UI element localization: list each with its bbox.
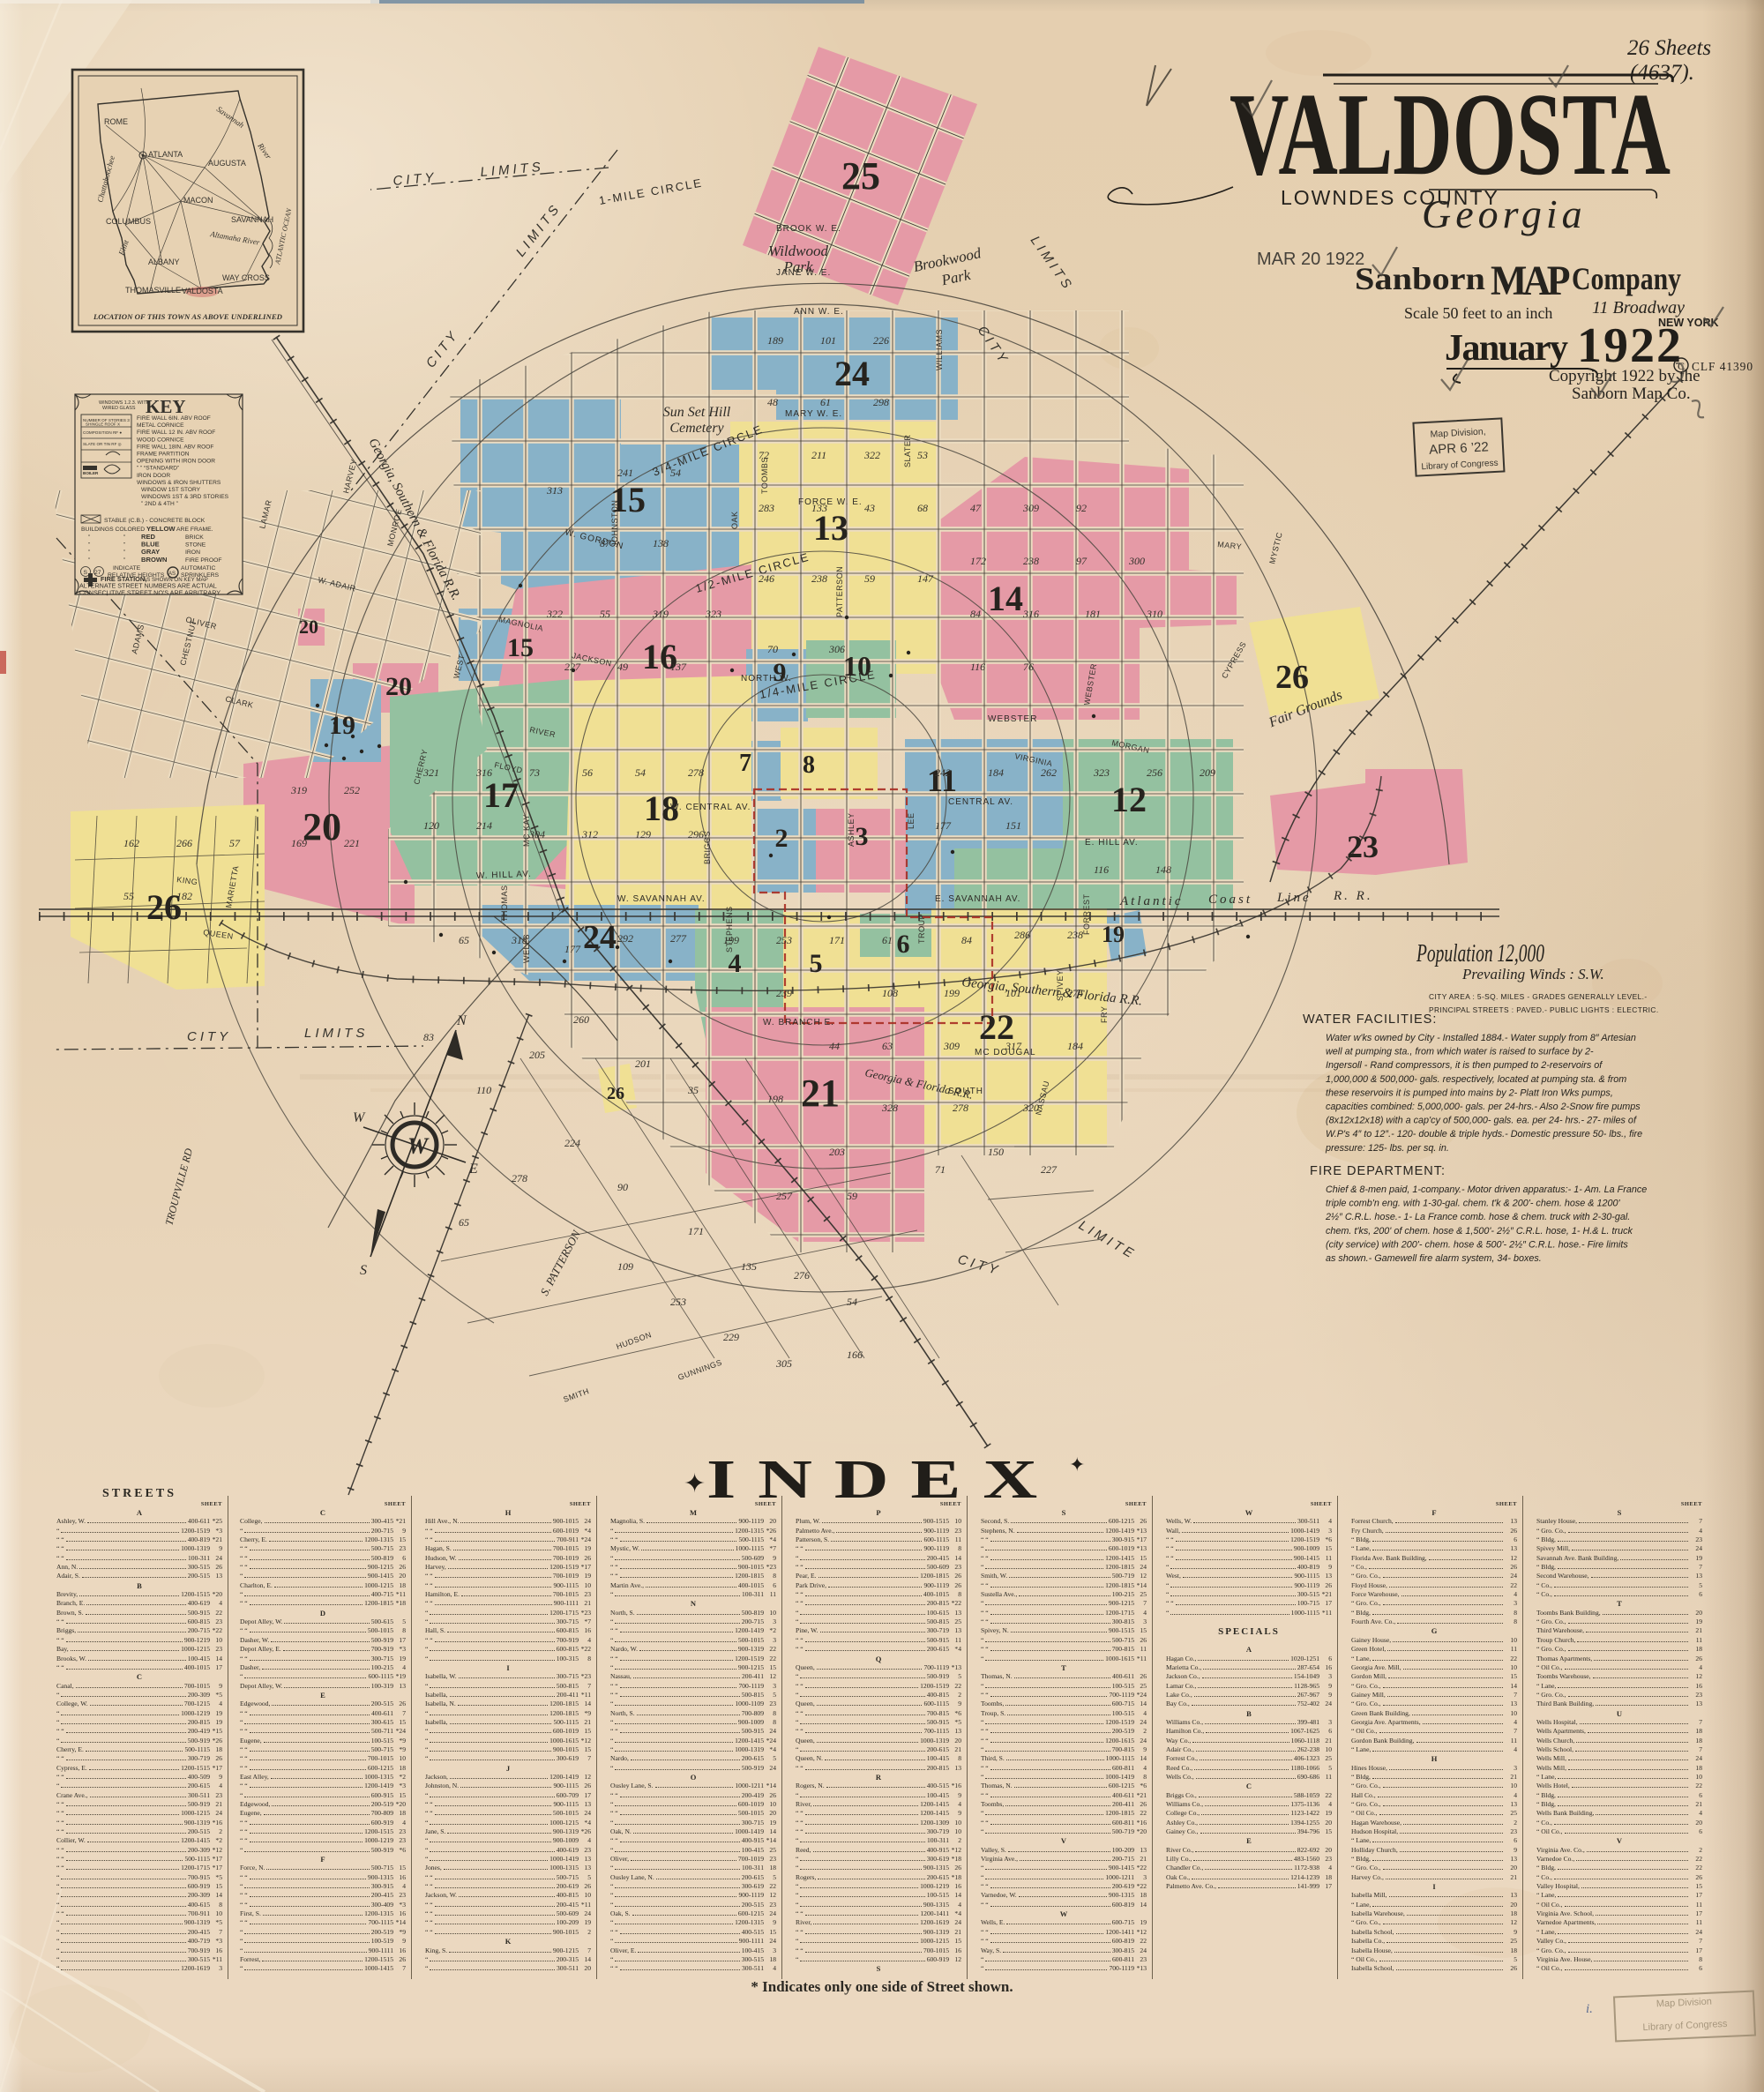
svg-text:319: 319 — [290, 784, 307, 796]
svg-text:24: 24 — [583, 919, 617, 956]
svg-text:(city service) with 200'- chem: (city service) with 200'- chem. hose & 5… — [1326, 1239, 1628, 1250]
svg-text:309: 309 — [1022, 502, 1039, 514]
svg-text:ASHLEY: ASHLEY — [847, 812, 856, 847]
svg-text:IRON DOOR: IRON DOOR — [137, 473, 170, 479]
svg-text:LEE: LEE — [907, 812, 916, 829]
svg-text:292: 292 — [617, 932, 633, 945]
svg-text:3: 3 — [856, 822, 869, 851]
svg-text:E. HILL AV.: E. HILL AV. — [1085, 838, 1139, 848]
svg-text:110: 110 — [476, 1084, 491, 1096]
svg-text:276: 276 — [794, 1269, 810, 1281]
svg-text:169: 169 — [291, 837, 307, 849]
svg-text:as shown.- Gamewell fire alarm: as shown.- Gamewell fire alarm system, 3… — [1326, 1253, 1542, 1264]
svg-text:VALDOSTA: VALDOSTA — [182, 287, 223, 295]
svg-text:January: January — [1445, 328, 1568, 369]
svg-text:SLATE OR TIN RF ◎: SLATE OR TIN RF ◎ — [83, 442, 123, 446]
svg-text:Company: Company — [1572, 261, 1681, 296]
svg-text:76: 76 — [1023, 661, 1034, 673]
svg-text:300: 300 — [1128, 555, 1145, 567]
svg-text:SPIVEY: SPIVEY — [1056, 969, 1065, 1001]
svg-text:322: 322 — [546, 608, 563, 620]
svg-text:150: 150 — [988, 1146, 1004, 1158]
svg-text:97: 97 — [1076, 555, 1088, 567]
svg-text:205: 205 — [529, 1049, 545, 1061]
svg-text:CENTRAL AV.: CENTRAL AV. — [948, 797, 1013, 807]
svg-text:239: 239 — [776, 987, 792, 999]
svg-text:STEPHENS: STEPHENS — [725, 906, 734, 953]
svg-text:LIMITS: LIMITS — [480, 160, 545, 180]
svg-text:253: 253 — [776, 934, 792, 946]
svg-text:229: 229 — [723, 1331, 739, 1343]
svg-text:59: 59 — [864, 572, 875, 585]
svg-text:5: 5 — [810, 949, 823, 978]
svg-text:7: 7 — [739, 750, 751, 777]
svg-text:6: 6 — [897, 930, 910, 959]
svg-text:CITY: CITY — [392, 170, 437, 189]
svg-text:WATER FACILITIES:: WATER FACILITIES: — [1303, 1012, 1437, 1027]
svg-text:209: 209 — [1200, 766, 1215, 779]
svg-text:278: 278 — [512, 1172, 527, 1184]
svg-text:MARY W. E.: MARY W. E. — [785, 409, 842, 419]
svg-text:LOCATION OF THIS TOWN AS ABOVE: LOCATION OF THIS TOWN AS ABOVE UNDERLINE… — [93, 312, 283, 321]
svg-text:116: 116 — [1094, 863, 1109, 876]
svg-text:BOILER: BOILER — [83, 471, 99, 475]
svg-text:20: 20 — [303, 805, 341, 848]
svg-text:286: 286 — [1014, 929, 1030, 941]
svg-text:THOMASVILLE: THOMASVILLE — [125, 286, 181, 295]
svg-text:GUNNINGS: GUNNINGS — [676, 1358, 723, 1382]
svg-text:(8x12x12x18) with a cap'cy of: (8x12x12x18) with a cap'cy of 500,000- g… — [1326, 1116, 1637, 1126]
svg-text:ATLANTA: ATLANTA — [148, 150, 183, 159]
svg-text:21: 21 — [801, 1072, 840, 1115]
svg-text:N: N — [456, 1013, 467, 1028]
svg-text:322: 322 — [863, 449, 880, 461]
svg-text:203: 203 — [829, 1146, 845, 1158]
svg-text:189: 189 — [767, 334, 783, 347]
svg-text:WELLS: WELLS — [522, 934, 531, 963]
svg-text:56: 56 — [582, 766, 593, 779]
svg-text:COLUMBUS: COLUMBUS — [106, 217, 151, 226]
svg-text:48: 48 — [767, 396, 778, 408]
svg-text:262: 262 — [1041, 766, 1057, 779]
svg-text:” ” “STANDARD”: ” ” “STANDARD” — [137, 466, 179, 472]
svg-text:26: 26 — [607, 1084, 624, 1103]
svg-text:309: 309 — [943, 1040, 960, 1052]
svg-text:SHINGLE ROOF X: SHINGLE ROOF X — [86, 422, 120, 427]
svg-text:316: 316 — [1022, 608, 1039, 620]
svg-text:S: S — [84, 570, 88, 576]
svg-text:E. SAVANNAH AV.: E. SAVANNAH AV. — [935, 894, 1020, 904]
svg-text:177: 177 — [564, 943, 581, 955]
svg-text:15: 15 — [507, 633, 534, 662]
svg-text:312: 312 — [581, 828, 598, 841]
svg-text:WILLIAMS: WILLIAMS — [935, 329, 944, 370]
svg-text:Map Division,: Map Division, — [1430, 426, 1486, 439]
svg-text:LIMITS: LIMITS — [1028, 234, 1076, 295]
svg-text:260: 260 — [573, 1013, 589, 1026]
svg-text:1,000,000 & 500,000- gals. res: 1,000,000 & 500,000- gals. respectively,… — [1326, 1074, 1626, 1085]
svg-text:182: 182 — [176, 890, 192, 902]
svg-text:323: 323 — [1093, 766, 1110, 779]
svg-text:BROOK W. E.: BROOK W. E. — [776, 224, 841, 234]
svg-text:CITY AREA : 5-SQ. MILES - GRAD: CITY AREA : 5-SQ. MILES - GRADES GENERAL… — [1429, 992, 1648, 1001]
svg-text:Sun Set Hill: Sun Set Hill — [663, 405, 731, 420]
svg-text:ALBANY: ALBANY — [148, 258, 180, 266]
svg-text:328: 328 — [881, 1102, 898, 1114]
svg-text:these reservoirs it is pumped: these reservoirs it is pumped into mains… — [1326, 1087, 1613, 1098]
svg-text:capacities combined: 5,000,000: capacities combined: 5,000,000- gals. pe… — [1326, 1102, 1641, 1112]
svg-text:SMITH: SMITH — [562, 1386, 590, 1404]
svg-text:PATTERSON: PATTERSON — [835, 566, 844, 617]
svg-text:AUTOMATIC: AUTOMATIC — [181, 565, 215, 572]
svg-text:CITY: CITY — [956, 1252, 1003, 1279]
svg-text:TROUPVILLE RD: TROUPVILLE RD — [162, 1147, 195, 1227]
svg-text:306: 306 — [828, 643, 845, 655]
svg-text:253: 253 — [670, 1296, 686, 1308]
svg-text:44: 44 — [829, 1040, 840, 1052]
svg-text:FRY: FRY — [1100, 1006, 1109, 1023]
svg-text:171: 171 — [829, 934, 845, 946]
svg-text:49: 49 — [617, 661, 628, 673]
svg-text:FIRE WALL 12 IN. ABV ROOF: FIRE WALL 12 IN. ABV ROOF — [137, 430, 215, 436]
svg-text:54: 54 — [847, 1296, 857, 1308]
svg-text:65: 65 — [459, 934, 469, 946]
svg-text:90: 90 — [617, 1181, 628, 1193]
svg-text:54: 54 — [670, 467, 681, 479]
svg-text:1-MILE CIRCLE: 1-MILE CIRCLE — [598, 176, 704, 206]
svg-text:120: 120 — [423, 819, 439, 832]
svg-text:108: 108 — [882, 987, 898, 999]
svg-text:319: 319 — [652, 608, 669, 620]
svg-text:59: 59 — [847, 1190, 857, 1202]
svg-text:” 2ND & 4TH ”: ” 2ND & 4TH ” — [141, 501, 178, 507]
svg-text:triple comb'n eng. with 1-30-g: triple comb'n eng. with 1-30-gal. chem. … — [1326, 1199, 1620, 1209]
svg-text:70: 70 — [767, 643, 778, 655]
svg-text:WINDOWS 1ST & 3RD STORIES: WINDOWS 1ST & 3RD STORIES — [141, 494, 229, 500]
svg-text:W. ADAIR: W. ADAIR — [318, 575, 357, 593]
svg-text:246: 246 — [759, 572, 774, 585]
svg-text:171: 171 — [688, 1225, 704, 1237]
svg-text:LIMITE: LIMITE — [1076, 1218, 1139, 1263]
svg-text:W. HILL AV.: W. HILL AV. — [476, 870, 532, 881]
svg-text:Georgia: Georgia — [1422, 191, 1587, 236]
svg-text:109: 109 — [617, 1260, 633, 1273]
svg-text:CITY: CITY — [423, 326, 462, 370]
svg-text:JANE W. E.: JANE W. E. — [776, 268, 831, 278]
svg-text:TOOMBS: TOOMBS — [760, 457, 769, 494]
svg-text:Atlantic: Atlantic — [1119, 894, 1184, 908]
svg-text:W. SAVANNAH AV.: W. SAVANNAH AV. — [617, 894, 706, 904]
svg-text:METAL CORNICE: METAL CORNICE — [137, 422, 184, 429]
svg-text:252: 252 — [344, 784, 360, 796]
svg-text:CHESTNUT: CHESTNUT — [178, 619, 198, 667]
svg-text:266: 266 — [176, 837, 192, 849]
svg-text:147: 147 — [917, 572, 934, 585]
svg-text:SAVANNAH: SAVANNAH — [231, 215, 273, 224]
svg-text:184: 184 — [988, 766, 1004, 779]
svg-text:R. R.: R. R. — [1333, 889, 1373, 903]
svg-text:101: 101 — [820, 334, 836, 347]
svg-text:61: 61 — [882, 934, 893, 946]
svg-text:Park: Park — [939, 266, 973, 289]
svg-text:1922: 1922 — [1577, 318, 1683, 373]
svg-text:LIMITS: LIMITS — [513, 200, 564, 259]
svg-text:HARVEY: HARVEY — [341, 458, 358, 494]
svg-text:298: 298 — [873, 396, 889, 408]
svg-text:ANN W. E.: ANN W. E. — [794, 307, 844, 317]
svg-text:BROWN: BROWN — [141, 556, 168, 564]
svg-text:TROUP: TROUP — [917, 914, 926, 944]
svg-text:92: 92 — [1076, 502, 1087, 514]
svg-text:CONSECUTIVE STREET NO'S ARE AR: CONSECUTIVE STREET NO'S ARE ARBITRARY — [79, 589, 220, 597]
svg-text:8: 8 — [803, 751, 815, 779]
svg-text:MYSTIC: MYSTIC — [1267, 531, 1284, 564]
svg-text:Population 12,000: Population 12,000 — [1416, 939, 1544, 968]
svg-text:129: 129 — [635, 828, 651, 841]
svg-text:184: 184 — [1067, 1040, 1083, 1052]
svg-text:238: 238 — [1067, 929, 1083, 941]
svg-text:OPENING WITH IRON DOOR: OPENING WITH IRON DOOR — [137, 459, 215, 465]
svg-text:23: 23 — [1347, 829, 1379, 864]
svg-text:W. BRANCH E.: W. BRANCH E. — [763, 1018, 834, 1027]
svg-text:199: 199 — [944, 987, 960, 999]
svg-text:20: 20 — [299, 616, 318, 638]
svg-text:well at pumping sta., from whi: well at pumping sta., from which water i… — [1326, 1047, 1594, 1057]
svg-text:68: 68 — [917, 502, 928, 514]
svg-text:162: 162 — [123, 837, 139, 849]
svg-text:227: 227 — [1041, 1163, 1058, 1176]
svg-text:26 Sheets: 26 Sheets — [1627, 36, 1711, 60]
svg-text:KEY: KEY — [146, 396, 186, 417]
svg-text:63: 63 — [882, 1040, 893, 1052]
svg-text:84: 84 — [961, 934, 972, 946]
svg-text:198: 198 — [767, 1093, 783, 1105]
svg-text:Ingersoll - Rand compressors,: Ingersoll - Rand compressors, it is then… — [1326, 1060, 1603, 1071]
svg-text:135: 135 — [741, 1260, 757, 1273]
svg-text:APR 6 ’22: APR 6 ’22 — [1429, 439, 1489, 458]
svg-text:316: 316 — [475, 766, 492, 779]
svg-text:137: 137 — [670, 661, 687, 673]
svg-text:133: 133 — [811, 502, 827, 514]
svg-text:17: 17 — [483, 775, 519, 815]
svg-text:WINDOW 1ST STORY: WINDOW 1ST STORY — [141, 487, 201, 493]
svg-text:256: 256 — [1147, 766, 1162, 779]
svg-text:323: 323 — [705, 608, 721, 620]
svg-text:NORTH W.: NORTH W. — [741, 674, 792, 684]
svg-text:THOMAS: THOMAS — [500, 885, 509, 922]
svg-text:181: 181 — [1085, 608, 1101, 620]
svg-text:Chief & 8-men paid, 1-company.: Chief & 8-men paid, 1-company.- Motor dr… — [1326, 1184, 1647, 1195]
svg-text:24: 24 — [834, 354, 870, 393]
svg-text:238: 238 — [1023, 555, 1039, 567]
svg-text:151: 151 — [1005, 819, 1021, 832]
svg-text:221: 221 — [344, 837, 360, 849]
svg-text:25: 25 — [841, 154, 880, 198]
svg-text:HUDSON: HUDSON — [615, 1330, 653, 1351]
svg-text:278: 278 — [688, 766, 704, 779]
svg-text:LIMITS: LIMITS — [304, 1026, 368, 1041]
svg-text:MAP: MAP — [1491, 258, 1569, 304]
svg-text:35: 35 — [687, 1084, 699, 1096]
svg-text:ROME: ROME — [104, 117, 128, 126]
svg-text:STONE: STONE — [185, 542, 206, 549]
svg-text:55: 55 — [123, 890, 134, 902]
svg-text:241: 241 — [617, 467, 633, 479]
svg-text:PRINCIPAL STREETS : PAVED.- P: PRINCIPAL STREETS : PAVED.- PUBLIC LIGHT… — [1429, 1005, 1659, 1014]
svg-text:pressure: 125- lbs. per sq. in: pressure: 125- lbs. per sq. in. — [1325, 1143, 1449, 1154]
svg-text:FORREST: FORREST — [1082, 893, 1091, 935]
svg-text:W: W — [353, 1110, 366, 1125]
svg-text:278: 278 — [953, 1102, 968, 1114]
svg-text:310: 310 — [1146, 608, 1162, 620]
svg-text:JOHNSTON: JOHNSTON — [610, 500, 619, 547]
svg-text:COMPOSITION RF ●: COMPOSITION RF ● — [83, 430, 122, 435]
svg-text:IRON: IRON — [185, 549, 200, 556]
svg-text:19: 19 — [1102, 922, 1125, 947]
svg-text:296: 296 — [688, 828, 704, 841]
svg-text:71: 71 — [935, 1163, 946, 1176]
svg-text:SLATER: SLATER — [903, 435, 912, 467]
svg-text:257: 257 — [776, 1190, 793, 1202]
svg-text:54: 54 — [635, 766, 646, 779]
svg-text:Coast: Coast — [1208, 893, 1252, 907]
svg-text:177: 177 — [935, 819, 952, 832]
svg-text:Georgia, Southern & Florida R: Georgia, Southern & Florida R.R. — [365, 436, 463, 602]
svg-text:238: 238 — [811, 572, 827, 585]
svg-text:SOUTH: SOUTH — [948, 1087, 983, 1096]
svg-text:WEBSTER: WEBSTER — [988, 714, 1037, 724]
svg-text:E: E — [468, 1162, 478, 1177]
svg-text:AUGUSTA: AUGUSTA — [208, 159, 246, 168]
svg-text:47: 47 — [970, 502, 982, 514]
svg-text:Scale 50 feet to an inch: Scale 50 feet to an inch — [1404, 304, 1552, 322]
svg-text:CITY: CITY — [975, 324, 1013, 369]
svg-text:Cemetery: Cemetery — [669, 421, 724, 436]
svg-text:Wildwood: Wildwood — [768, 243, 829, 259]
svg-text:Library of Congress: Library of Congress — [1421, 459, 1499, 473]
svg-text:Water w'ks owned by City - Ins: Water w'ks owned by City - Installed 188… — [1326, 1033, 1636, 1043]
svg-text:214: 214 — [476, 819, 492, 832]
svg-text:WAY CROSS: WAY CROSS — [222, 273, 270, 282]
svg-text:CLF 41390: CLF 41390 — [1692, 361, 1753, 374]
svg-text:FRAME PARTITION: FRAME PARTITION — [137, 452, 190, 458]
svg-text:242: 242 — [935, 766, 951, 779]
svg-text:FIRE WALL 18IN. ABV ROOF: FIRE WALL 18IN. ABV ROOF — [137, 444, 213, 450]
svg-text:OAK: OAK — [730, 511, 739, 529]
svg-text:STABLE (C.B.) - CONCRETE BLOC: STABLE (C.B.) - CONCRETE BLOCK — [104, 518, 206, 524]
svg-text:12: 12 — [1111, 780, 1147, 819]
svg-text:2½″ C.R.L. hose.- 1- La France: 2½″ C.R.L. hose.- 1- La France comb. hos… — [1325, 1212, 1630, 1222]
svg-text:BUILDINGS COLORED YELLOW ARE F: BUILDINGS COLORED YELLOW ARE FRAME. — [81, 525, 213, 533]
svg-text:313: 313 — [546, 484, 563, 497]
svg-text:chem. t'ks, 200' of chem. hose: chem. t'ks, 200' of chem. hose & 1,500'-… — [1326, 1226, 1633, 1237]
svg-text:11 Broadway: 11 Broadway — [1592, 298, 1685, 318]
svg-text:WIRED GLASS: WIRED GLASS — [102, 406, 136, 411]
svg-text:W.P's 4″ to 12″.- 120- double: W.P's 4″ to 12″.- 120- double & triple h… — [1326, 1129, 1642, 1139]
svg-text:201: 201 — [635, 1057, 651, 1070]
svg-text:INDICATE: INDICATE — [113, 565, 141, 572]
svg-text:Sanborn Map Co.: Sanborn Map Co. — [1572, 385, 1691, 403]
svg-text:224: 224 — [564, 1137, 580, 1149]
svg-text:WOOD CORNICE: WOOD CORNICE — [137, 437, 184, 443]
svg-text:Line: Line — [1276, 891, 1312, 905]
svg-text:2: 2 — [775, 824, 789, 853]
svg-text:305: 305 — [775, 1357, 792, 1370]
svg-text:MC KAY: MC KAY — [522, 814, 531, 847]
svg-text:317: 317 — [1005, 1040, 1022, 1052]
svg-text:FORCE W. E.: FORCE W. E. — [798, 497, 863, 507]
svg-text:73: 73 — [529, 766, 540, 779]
svg-text:65: 65 — [459, 1216, 469, 1229]
svg-text:55: 55 — [600, 608, 610, 620]
svg-text:VALDOSTA: VALDOSTA — [1230, 69, 1671, 199]
svg-text:226: 226 — [873, 334, 889, 347]
svg-text:116: 116 — [970, 661, 985, 673]
svg-text:Prevailing Winds : S.W.: Prevailing Winds : S.W. — [1461, 966, 1604, 982]
svg-text:✦: ✦ — [1069, 1453, 1085, 1476]
svg-text:W: W — [407, 1133, 430, 1159]
svg-text:84: 84 — [970, 608, 981, 620]
svg-text:BRIGGS: BRIGGS — [703, 831, 712, 864]
svg-text:26: 26 — [1275, 659, 1309, 696]
svg-text:MARY: MARY — [1217, 540, 1243, 551]
svg-text:283: 283 — [759, 502, 774, 514]
svg-text:CITY: CITY — [187, 1029, 231, 1044]
svg-text:S: S — [360, 1263, 367, 1278]
svg-text:WINDOWS & IRON SHUTTERS: WINDOWS & IRON SHUTTERS — [137, 480, 221, 486]
svg-text:ADAMS: ADAMS — [130, 624, 146, 655]
svg-text:138: 138 — [653, 537, 669, 549]
svg-text:321: 321 — [422, 766, 439, 779]
svg-text:211: 211 — [811, 449, 826, 461]
svg-text:166: 166 — [847, 1349, 863, 1361]
svg-text:20: 20 — [385, 672, 412, 701]
svg-text:43: 43 — [864, 502, 875, 514]
svg-text:MACON: MACON — [183, 196, 213, 205]
svg-text:148: 148 — [1155, 863, 1171, 876]
svg-text:W. CENTRAL AV.: W. CENTRAL AV. — [670, 803, 751, 812]
svg-text:BRICK: BRICK — [185, 534, 204, 541]
svg-text:MAR 20 1922: MAR 20 1922 — [1257, 250, 1364, 269]
svg-text:FIRE DEPARTMENT:: FIRE DEPARTMENT: — [1310, 1164, 1446, 1178]
svg-text:83: 83 — [423, 1031, 434, 1043]
svg-text:61: 61 — [820, 396, 831, 408]
svg-text:FIRE WALL 6IN. ABV ROOF: FIRE WALL 6IN. ABV ROOF — [137, 415, 211, 422]
svg-text:53: 53 — [917, 449, 928, 461]
svg-text:14: 14 — [988, 579, 1023, 618]
svg-text:101: 101 — [1005, 987, 1021, 999]
svg-text:FIRE PROOF: FIRE PROOF — [185, 557, 222, 564]
svg-text:277: 277 — [670, 932, 687, 945]
svg-text:172: 172 — [970, 555, 986, 567]
svg-text:57: 57 — [229, 837, 241, 849]
svg-text:274: 274 — [1067, 987, 1083, 999]
